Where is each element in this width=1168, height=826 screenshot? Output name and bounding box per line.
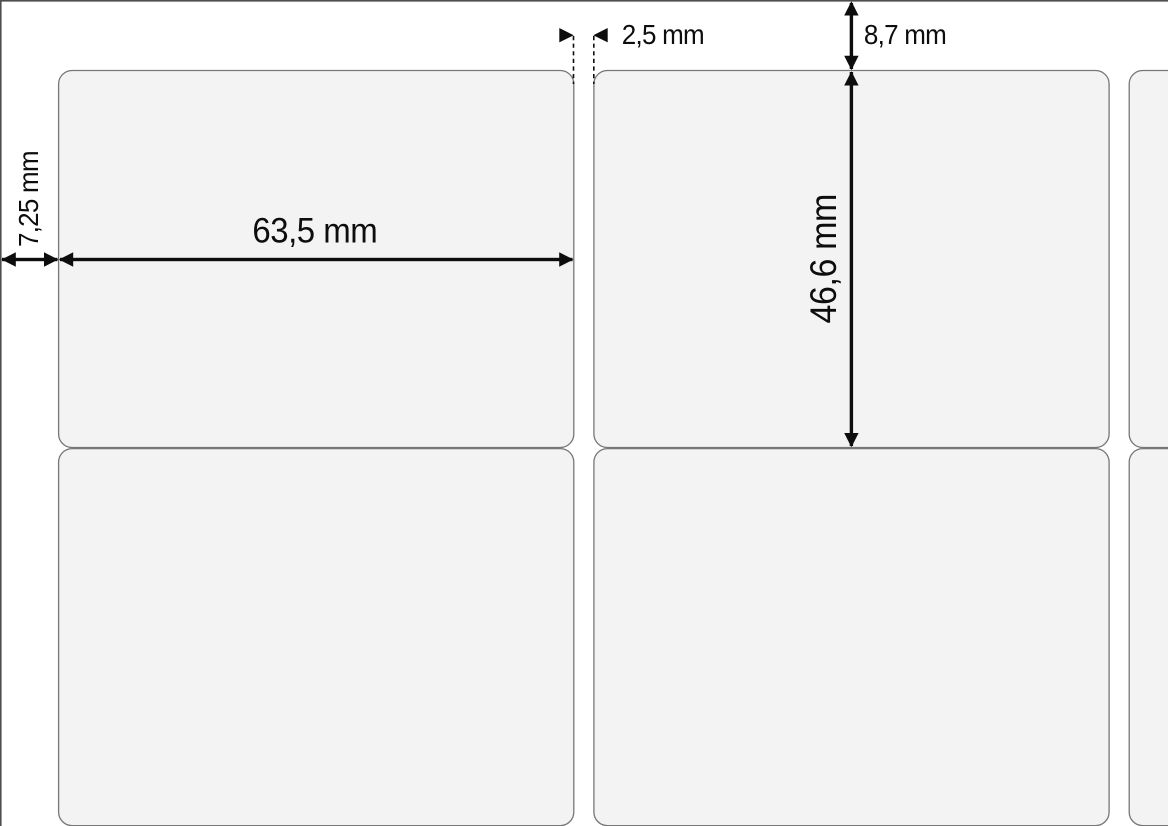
svg-text:2,5 mm: 2,5 mm [622,19,704,50]
svg-text:63,5 mm: 63,5 mm [252,212,377,251]
svg-text:46,6 mm: 46,6 mm [804,194,844,323]
svg-text:8,7 mm: 8,7 mm [864,19,946,50]
svg-text:7,25 mm: 7,25 mm [13,151,44,247]
